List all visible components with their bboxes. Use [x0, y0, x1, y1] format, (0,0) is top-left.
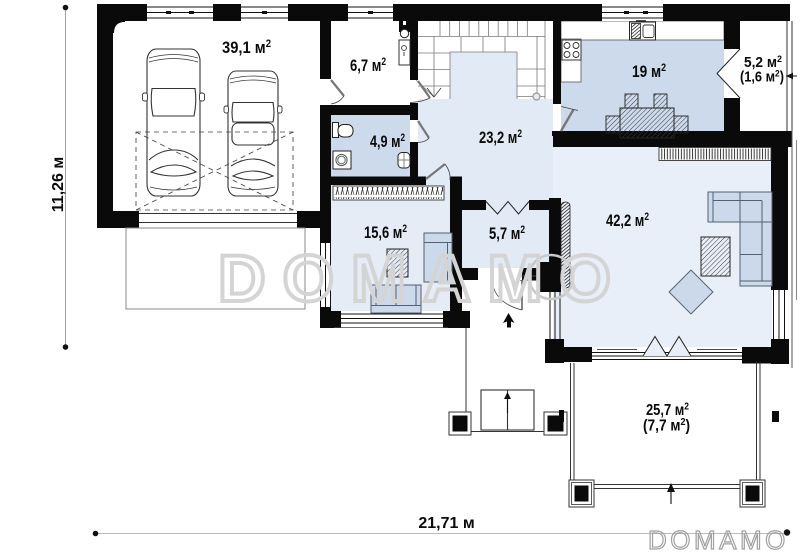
svg-text:15,6 м2: 15,6 м2 [364, 223, 407, 242]
svg-text:19 м2: 19 м2 [632, 62, 666, 81]
svg-text:39,1 м2: 39,1 м2 [222, 38, 271, 57]
svg-text:21,71 м: 21,71 м [418, 515, 474, 532]
svg-text:6,7 м2: 6,7 м2 [350, 56, 386, 75]
svg-text:11,26 м: 11,26 м [50, 157, 67, 212]
svg-text:4,9 м2: 4,9 м2 [370, 132, 405, 151]
svg-text:DOMAMO: DOMAMO [648, 525, 789, 555]
svg-text:42,2 м2: 42,2 м2 [606, 211, 649, 230]
svg-text:23,2 м2: 23,2 м2 [479, 128, 522, 147]
svg-text:DOMAMO: DOMAMO [218, 241, 628, 315]
